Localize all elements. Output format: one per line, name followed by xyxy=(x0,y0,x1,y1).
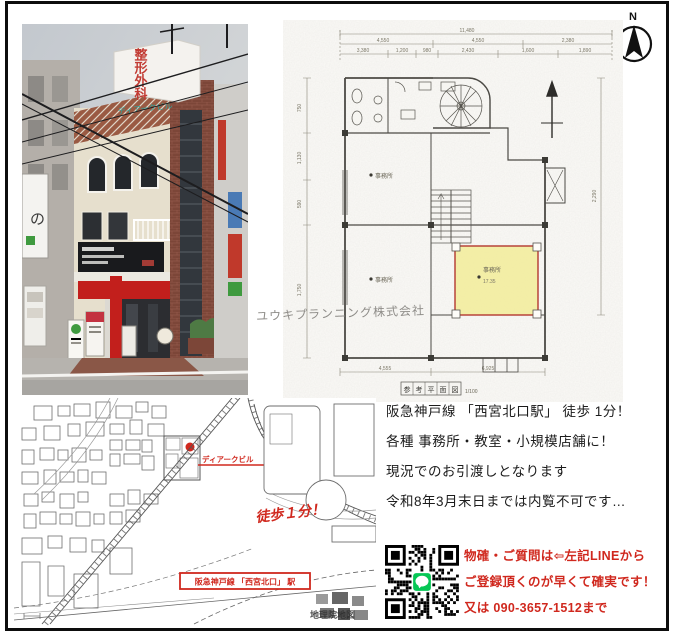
contact-line-1: 物確・ご質問は⇦左記LINEから xyxy=(464,549,668,564)
svg-text:参: 参 xyxy=(404,385,411,394)
red-pillar xyxy=(110,276,122,358)
svg-text:図: 図 xyxy=(452,386,459,394)
svg-text:590: 590 xyxy=(297,200,303,209)
line-qr-code xyxy=(385,541,459,623)
red-tenant-sign xyxy=(228,234,242,278)
svg-text:3,380: 3,380 xyxy=(357,48,370,54)
contact-info: 物確・ご質問は⇦左記LINEから ご登録頂くのが早くて確実です！ 又は 090-… xyxy=(464,549,668,627)
svg-text:1,600: 1,600 xyxy=(522,48,535,54)
side-sign-text: の xyxy=(30,211,45,228)
round-sign xyxy=(157,328,173,344)
north-needle xyxy=(625,25,643,58)
svg-text:750: 750 xyxy=(297,104,303,113)
svg-text:事務所: 事務所 xyxy=(375,276,393,284)
station-label: 阪急神戸線 「西宮北口」 駅 xyxy=(195,577,296,587)
svg-text:4,550: 4,550 xyxy=(377,38,390,44)
left-building: の xyxy=(22,60,80,358)
compass-north-label: N xyxy=(629,11,637,23)
location-map: ディアークビル xyxy=(14,398,376,626)
plan-scale: 1/100 xyxy=(465,389,478,395)
svg-text:980: 980 xyxy=(423,48,432,54)
svg-text:事務所: 事務所 xyxy=(375,172,393,180)
svg-text:2,380: 2,380 xyxy=(562,38,575,44)
svg-text:考: 考 xyxy=(416,386,423,394)
contact-line-3: 又は 090-3657-1512まで xyxy=(464,601,668,616)
svg-text:4,550: 4,550 xyxy=(472,38,485,44)
room-label: 事務所 xyxy=(483,266,501,274)
svg-text:1,750: 1,750 xyxy=(297,284,303,297)
station-label-box: 阪急神戸線 「西宮北口」 駅 xyxy=(180,573,310,589)
svg-text:4,555: 4,555 xyxy=(379,366,392,372)
marker-label: ディアークビル xyxy=(202,454,254,464)
contact-line-2: ご登録頂くのが早くて確実です！ xyxy=(464,575,668,590)
description-line-2: 各種 事務所・教室・小規模店舗に！ xyxy=(386,434,668,450)
svg-text:1,890: 1,890 xyxy=(579,48,592,54)
property-description: 阪急神戸線 「西宮北口駅」 徒歩 1分！ 各種 事務所・教室・小規模店舗に！ 現… xyxy=(386,404,668,524)
green-sign-mark xyxy=(26,236,35,245)
svg-text:2,430: 2,430 xyxy=(462,48,475,54)
floor-plan: 11,480 4,550 4,550 2,380 3,380 1,200 980… xyxy=(283,20,623,402)
svg-text:6,925: 6,925 xyxy=(482,366,495,372)
red-banner-sign xyxy=(78,281,184,299)
svg-text:1,200: 1,200 xyxy=(396,48,409,54)
building-photo: の xyxy=(22,24,248,395)
rooftop-sign-text: 整形外科 xyxy=(133,47,149,101)
right-building xyxy=(214,84,248,358)
room-area-label: 17.35 xyxy=(483,279,496,285)
map-watermark: 地理院地図 xyxy=(310,609,355,620)
svg-text:2,290: 2,290 xyxy=(592,190,598,203)
description-line-3: 現況でのお引渡しとなります xyxy=(386,464,668,480)
description-line-4: 令和8年3月末日までは内覧不可です… xyxy=(386,494,668,510)
spiral-staircase xyxy=(440,85,482,127)
svg-text:面: 面 xyxy=(440,386,447,394)
description-line-1: 阪急神戸線 「西宮北口駅」 徒歩 1分！ xyxy=(386,404,668,420)
svg-text:11,480: 11,480 xyxy=(460,28,475,34)
street xyxy=(22,358,248,395)
highlighted-room: 事務所 17.35 xyxy=(452,243,541,318)
flyer-page: の xyxy=(0,0,674,632)
svg-text:1,130: 1,130 xyxy=(297,152,303,165)
svg-text:平: 平 xyxy=(428,386,435,394)
